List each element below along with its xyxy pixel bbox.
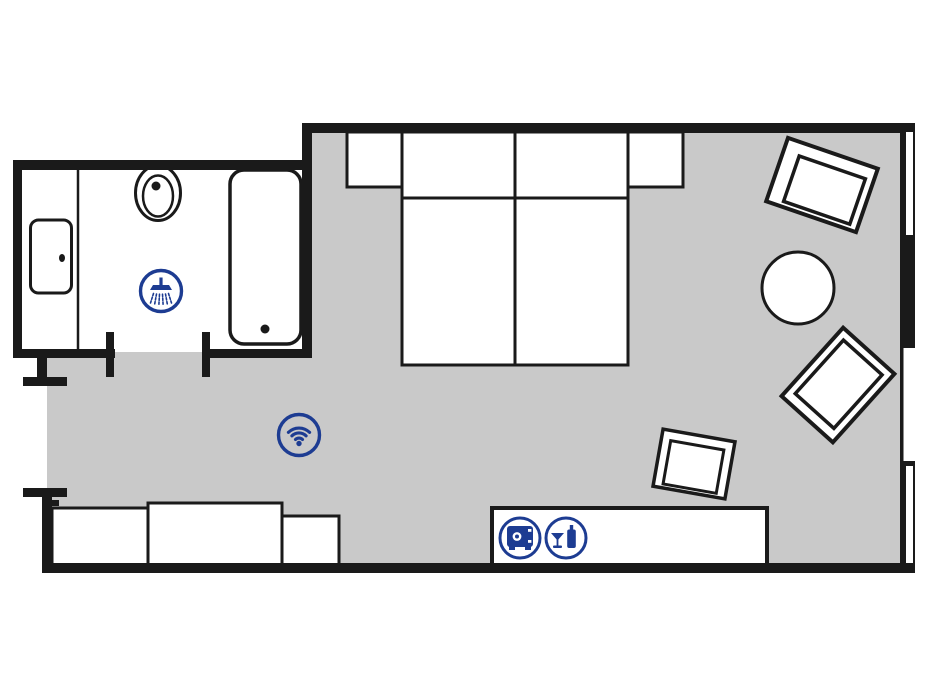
pillow-right bbox=[515, 132, 628, 198]
entry-jamb-upper-stub bbox=[37, 353, 47, 381]
wifi-dot bbox=[296, 441, 301, 446]
safe-hinge-top bbox=[528, 529, 531, 532]
round-table bbox=[762, 252, 834, 324]
shower-head bbox=[150, 285, 172, 290]
window-middle bbox=[904, 348, 916, 461]
pillow-left bbox=[402, 132, 515, 198]
desk-right bbox=[282, 516, 339, 568]
window-bottom bbox=[906, 466, 913, 563]
entry-jamb-lower-bar bbox=[23, 488, 67, 497]
bottle-neck bbox=[570, 525, 573, 530]
safe-dial-center bbox=[515, 535, 519, 539]
small-chair bbox=[653, 429, 735, 499]
shower-icon bbox=[141, 271, 182, 312]
small-chair-seat bbox=[663, 441, 724, 494]
nightstand-right bbox=[628, 132, 683, 187]
window-top bbox=[906, 132, 913, 235]
floor-plan bbox=[0, 0, 933, 700]
top-wall bbox=[302, 123, 915, 133]
desk-center bbox=[148, 503, 282, 568]
toilet bbox=[136, 166, 181, 221]
sideboard bbox=[492, 508, 767, 566]
bathroom-divider-wall bbox=[302, 123, 312, 358]
mattress-left bbox=[402, 198, 515, 365]
martini-stem bbox=[557, 540, 559, 547]
bottle-body bbox=[567, 530, 576, 549]
floor-plan-drawing bbox=[0, 0, 933, 700]
mattress-right bbox=[515, 198, 628, 365]
double-bed bbox=[402, 132, 628, 365]
martini-base bbox=[553, 546, 562, 549]
bathtub bbox=[230, 170, 301, 344]
lower-left-wall-step bbox=[48, 500, 59, 506]
nightstand-left bbox=[347, 132, 402, 187]
sink bbox=[31, 220, 72, 293]
bathroom-top-wall bbox=[13, 160, 312, 170]
entry-jamb-upper-bar bbox=[23, 377, 67, 386]
bathtub-drain bbox=[261, 325, 270, 334]
sink-drain bbox=[59, 254, 65, 262]
shower-icon-ring bbox=[141, 271, 182, 312]
bathroom bbox=[31, 166, 302, 351]
bathroom-door-jamb-left bbox=[106, 332, 114, 377]
shower-spray bbox=[151, 294, 172, 305]
toilet-flush bbox=[152, 182, 161, 191]
bathroom-left-wall bbox=[13, 160, 22, 358]
bottom-wall bbox=[42, 563, 915, 573]
bathroom-bottom-wall-right bbox=[202, 349, 312, 358]
safe-hinge-bottom bbox=[528, 540, 531, 543]
bathroom-bottom-wall-left bbox=[13, 349, 115, 358]
bathroom-door-jamb-right bbox=[202, 332, 210, 377]
shower-pipe bbox=[159, 278, 162, 287]
sink-basin bbox=[31, 220, 72, 293]
bathtub-body bbox=[230, 170, 301, 344]
desk-left bbox=[52, 508, 148, 568]
lower-left-wall bbox=[42, 497, 52, 573]
